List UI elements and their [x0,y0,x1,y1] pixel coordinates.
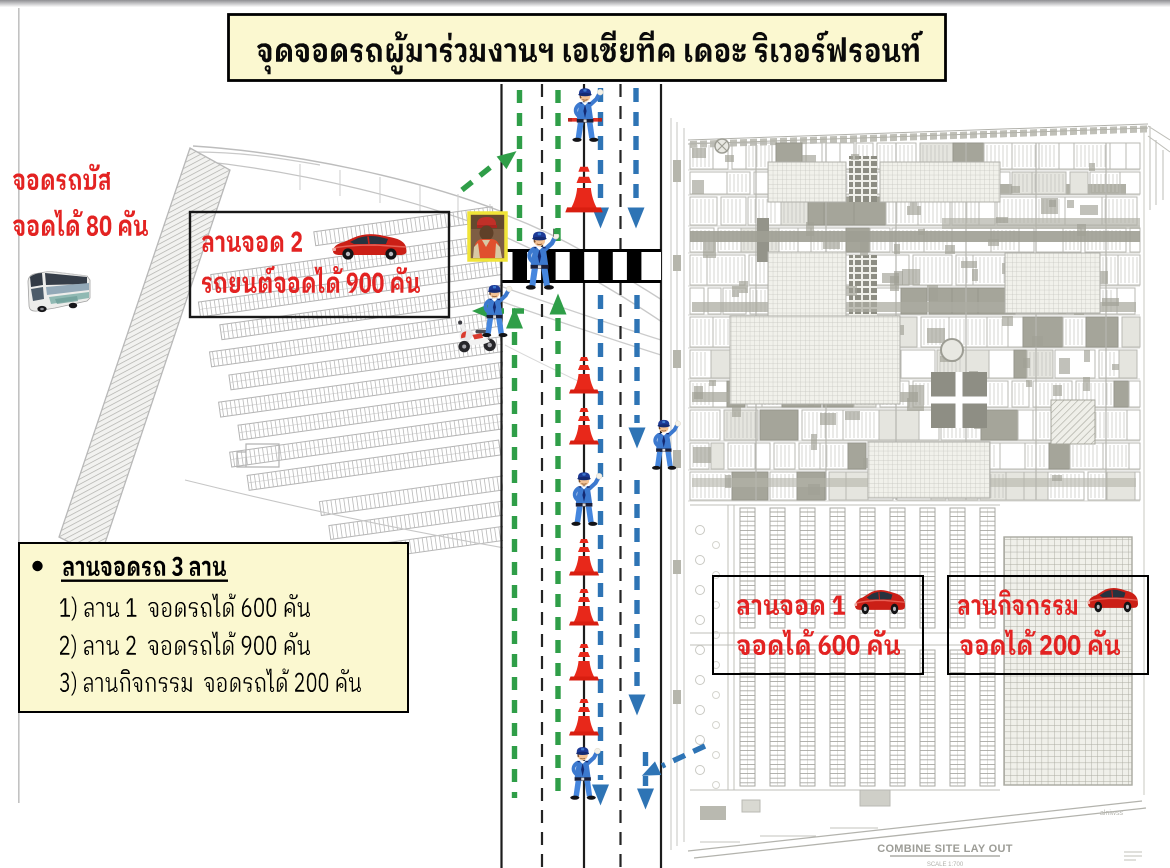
svg-text:SCALE 1:700: SCALE 1:700 [927,862,964,868]
svg-text:COMBINE SITE LAY OUT: COMBINE SITE LAY OUT [877,843,1013,855]
svg-text:alniwss: alniwss [1100,810,1123,817]
